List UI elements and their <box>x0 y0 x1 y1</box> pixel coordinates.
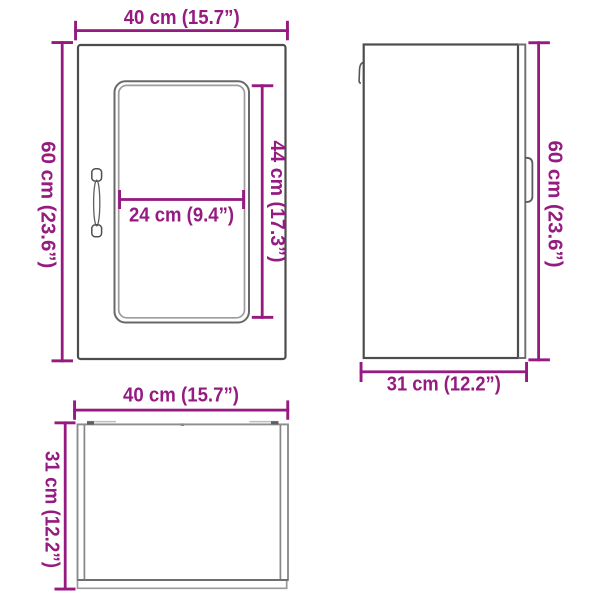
svg-text:60 cm (23.6”): 60 cm (23.6”) <box>37 141 59 268</box>
svg-text:24 cm (9.4”): 24 cm (9.4”) <box>129 205 234 227</box>
svg-text:60 cm (23.6”): 60 cm (23.6”) <box>543 141 565 268</box>
svg-text:44 cm (17.3”): 44 cm (17.3”) <box>266 141 288 263</box>
svg-text:31 cm (12.2”): 31 cm (12.2”) <box>41 451 63 568</box>
svg-text:40 cm (15.7”): 40 cm (15.7”) <box>123 385 239 407</box>
svg-text:40 cm (15.7”): 40 cm (15.7”) <box>124 7 240 29</box>
svg-text:31 cm (12.2”): 31 cm (12.2”) <box>387 374 501 396</box>
